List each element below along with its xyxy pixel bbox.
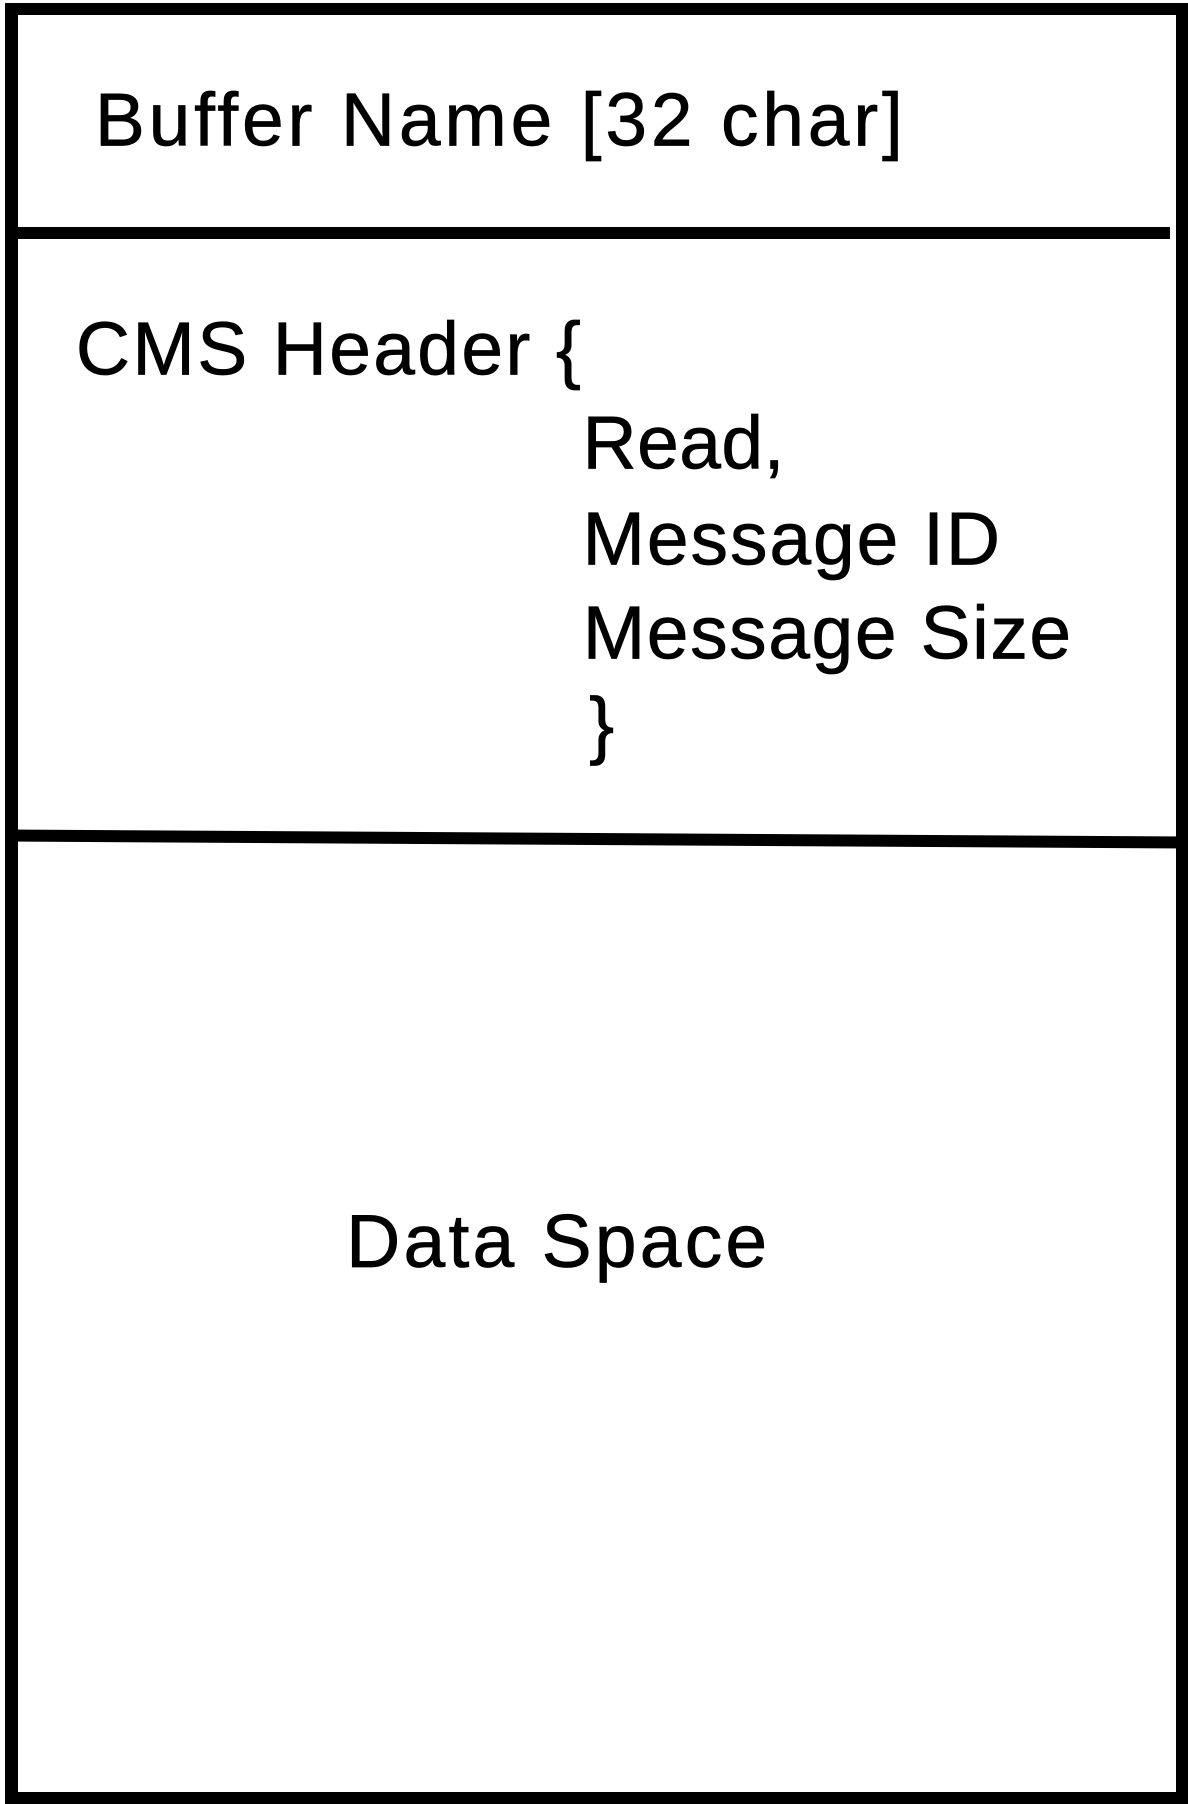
svg-text:Data Space: Data Space	[346, 1199, 767, 1283]
svg-text:}: }	[589, 682, 614, 766]
svg-text:CMS Header {: CMS Header {	[76, 307, 581, 391]
svg-text:Read,: Read,	[582, 401, 784, 485]
svg-text:Message Size: Message Size	[583, 591, 1071, 675]
